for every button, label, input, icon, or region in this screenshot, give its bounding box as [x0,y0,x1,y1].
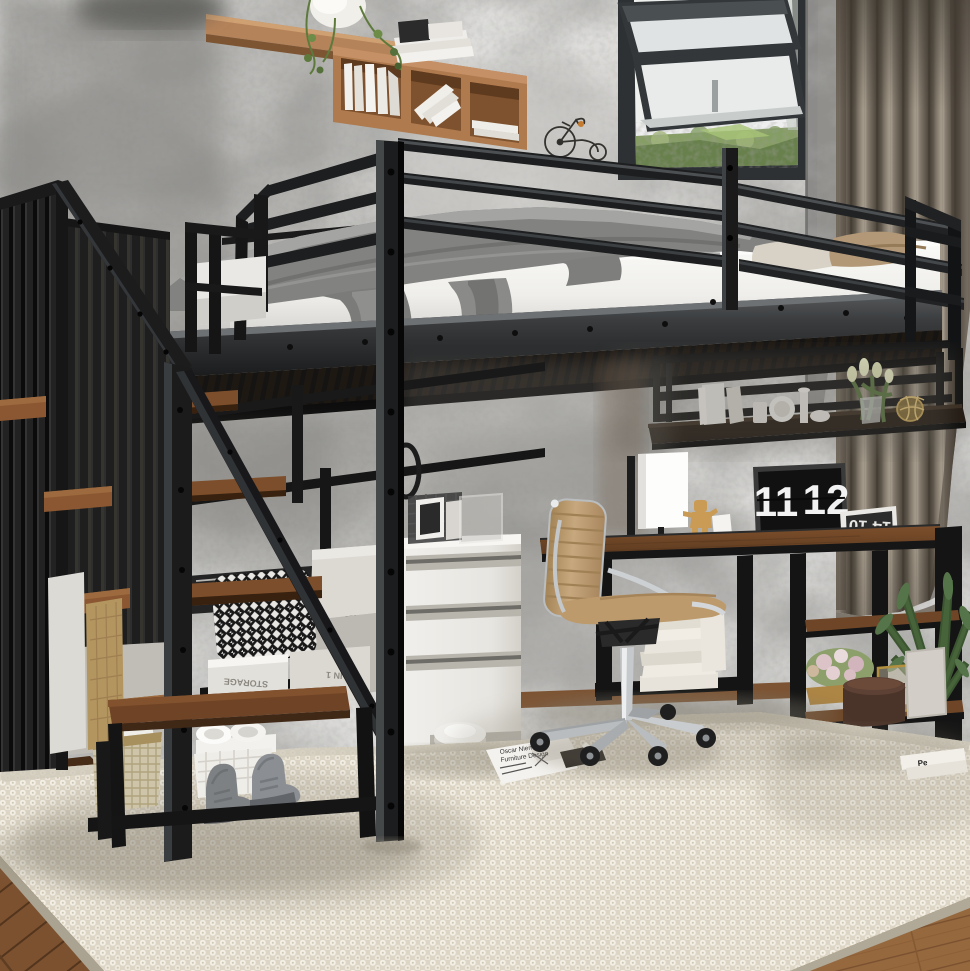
svg-text:Pe: Pe [917,758,928,768]
svg-text:11: 11 [754,478,798,525]
